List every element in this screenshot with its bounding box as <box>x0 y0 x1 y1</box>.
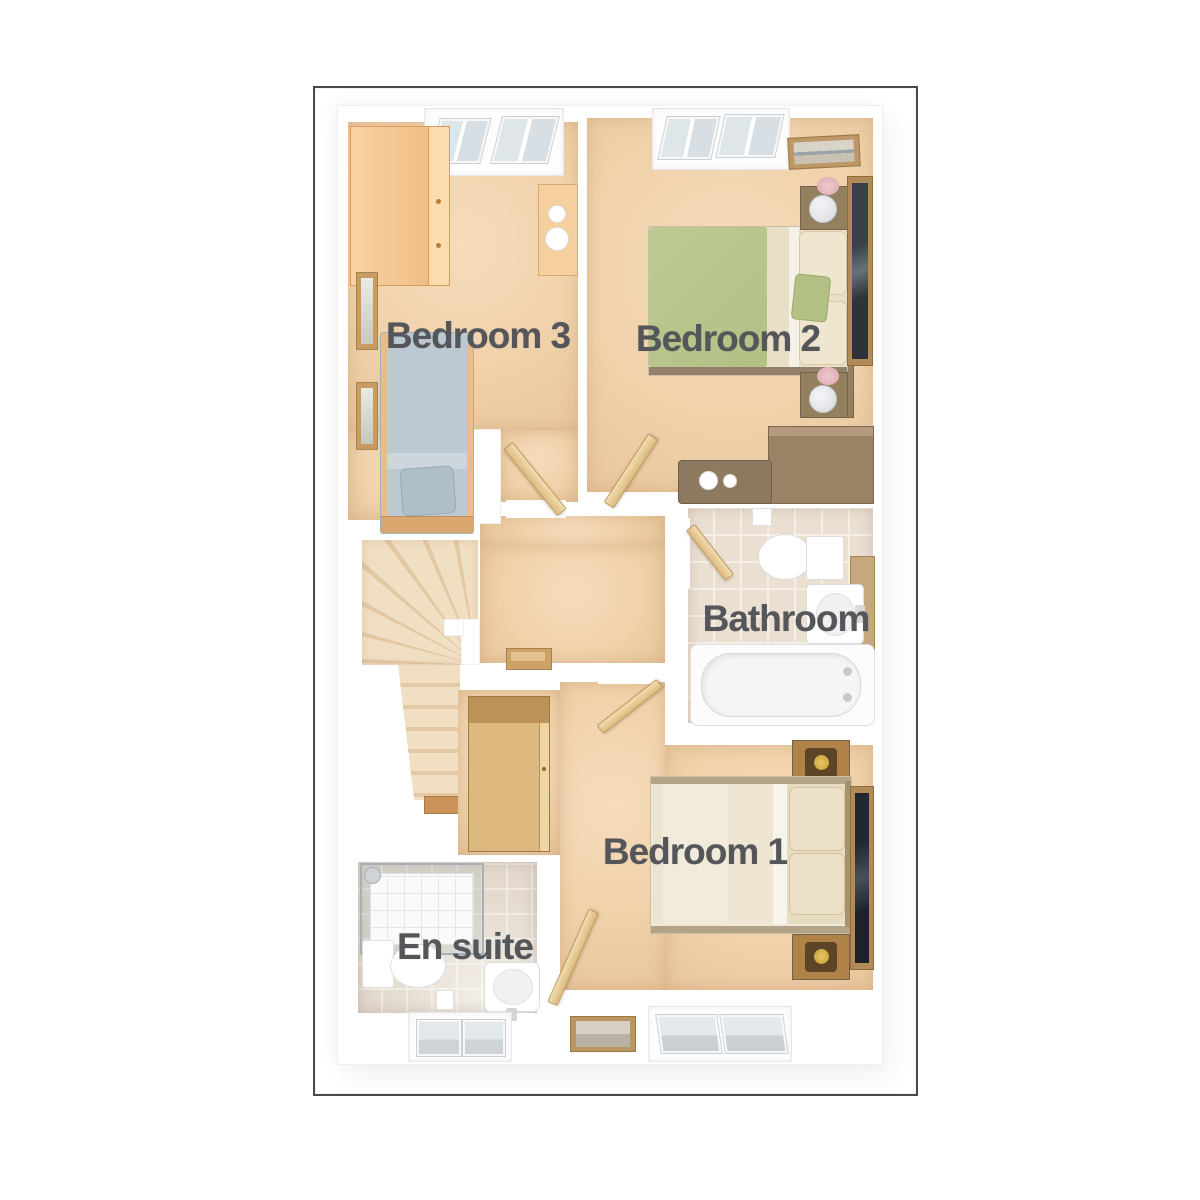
bowl <box>548 205 566 223</box>
bed-headboard <box>381 516 473 533</box>
bathroom-label: Bathroom <box>703 598 870 640</box>
bedroom1-picture-frame <box>570 1016 636 1052</box>
mirror-glass <box>855 793 869 963</box>
bathroom-toilet-roll-holder <box>752 508 772 526</box>
picture <box>361 278 373 344</box>
bed-foot-rail <box>651 926 851 933</box>
bedroom1-bedside-table <box>792 934 850 980</box>
window-pane <box>417 1020 461 1056</box>
bedroom3-picture-frame <box>356 272 378 350</box>
bedroom3-picture-frame <box>356 382 378 450</box>
stairs-newel-arm <box>445 620 463 635</box>
bed-head-rail <box>651 777 851 784</box>
window-pane <box>491 117 558 163</box>
stairs-bottom-wood-step <box>424 796 460 814</box>
bedroom2-window <box>652 108 790 170</box>
bedroom2-label: Bedroom 2 <box>636 318 820 360</box>
bed-cushion-green <box>791 273 832 323</box>
bedroom1-door-opening <box>598 664 658 684</box>
landing-floor <box>480 516 665 546</box>
bedroom2-picture-frame <box>787 134 861 170</box>
wardrobe-door-front <box>428 127 449 285</box>
picture <box>576 1021 630 1047</box>
table-lamp <box>809 195 837 223</box>
floor-plan-canvas: Bedroom 3 Bedroom 2 Bathroom Bedroom 1 E… <box>0 0 1200 1200</box>
bedroom1-window <box>648 1006 792 1062</box>
picture <box>361 388 373 444</box>
window-pane <box>656 1015 721 1053</box>
bed-pillow <box>399 465 456 517</box>
window-pane <box>717 115 784 157</box>
bedroom1-mirror <box>850 786 874 970</box>
bedroom2-stool-table <box>678 460 772 504</box>
basin-bowl <box>493 969 533 1005</box>
bath-tap <box>843 667 852 676</box>
bedroom3-dressing-table <box>538 184 578 276</box>
cup <box>699 471 718 490</box>
bedroom3-label: Bedroom 3 <box>386 315 570 357</box>
landing-shelf-box <box>506 648 552 670</box>
bedroom3-single-bed <box>380 332 474 534</box>
mirror-glass <box>852 183 868 359</box>
window-pane <box>463 1020 505 1056</box>
shower-head <box>364 867 381 884</box>
bowl <box>545 227 569 251</box>
bed-pillow <box>789 787 845 851</box>
bedroom1-label: Bedroom 1 <box>603 831 787 873</box>
shelf-box-top <box>511 652 545 661</box>
stairs-newel-post <box>462 620 479 664</box>
cup <box>723 474 737 488</box>
picture <box>793 139 854 164</box>
bed-side-rail <box>381 333 387 517</box>
ensuite-basin <box>484 962 540 1012</box>
table-lamp <box>809 385 837 413</box>
table-lamp-gold <box>814 949 829 964</box>
bath-tub-inner <box>701 653 861 717</box>
bed-pillow <box>789 853 845 915</box>
bedroom1-wardrobe-cabinet <box>468 696 550 852</box>
window-pane <box>659 117 720 159</box>
bathroom-toilet-cistern <box>806 536 844 580</box>
bed-side-rail <box>467 333 473 517</box>
bathroom-bath <box>690 644 875 726</box>
cabinet-front-edge <box>539 723 549 851</box>
bathroom-toilet-bowl <box>758 534 812 580</box>
bedroom2-bedside-table <box>800 372 848 418</box>
bath-tap <box>843 693 852 702</box>
table-lamp-gold <box>814 755 829 770</box>
stairs-winder-treads <box>362 540 478 665</box>
ensuite-window <box>408 1012 512 1062</box>
wardrobe-handle <box>436 243 441 248</box>
bedroom2-bedside-table <box>800 186 848 230</box>
wardrobe-handle <box>436 199 441 204</box>
lamp-flower-pink <box>817 177 839 195</box>
ensuite-label: En suite <box>397 926 533 968</box>
cabinet-handle <box>542 767 546 771</box>
bedroom2-mirror <box>847 176 873 366</box>
bedroom2-desk <box>768 426 874 504</box>
landing-floor <box>480 545 665 663</box>
ensuite-toilet-roll <box>436 990 454 1010</box>
window-pane <box>720 1015 787 1053</box>
bedroom3-wall-stub <box>472 430 500 523</box>
desk-top-edge <box>769 427 873 436</box>
bedroom3-wardrobe <box>350 126 450 286</box>
lamp-flower-pink <box>817 367 839 385</box>
